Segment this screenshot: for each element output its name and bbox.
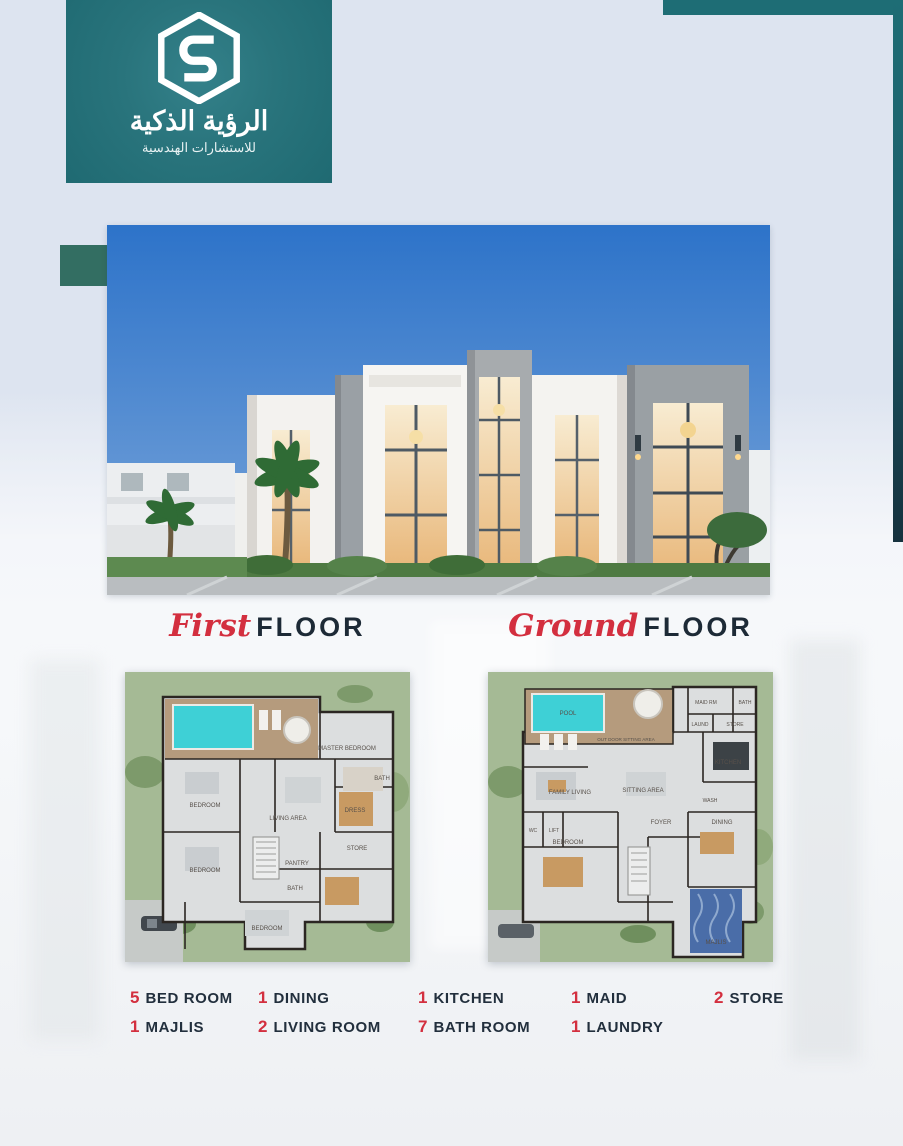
svg-text:STORE: STORE bbox=[726, 722, 744, 728]
hexagon-s-logo-icon bbox=[153, 12, 245, 104]
legend-item-store: 2STORE bbox=[714, 988, 784, 1008]
villa-exterior-photo bbox=[107, 225, 770, 595]
svg-text:LIVING AREA: LIVING AREA bbox=[269, 816, 306, 822]
svg-text:LIFT: LIFT bbox=[549, 828, 559, 834]
svg-text:BEDROOM: BEDROOM bbox=[189, 803, 220, 809]
legend-count: 1 bbox=[571, 1017, 580, 1036]
teal-top-bar bbox=[663, 0, 903, 15]
legend-label: STORE bbox=[729, 990, 783, 1007]
teal-accent-rect bbox=[60, 245, 108, 286]
svg-text:FAMILY LIVING: FAMILY LIVING bbox=[549, 790, 591, 796]
brand-subtitle-arabic: للاستشارات الهندسية bbox=[142, 140, 256, 156]
legend-label: LIVING ROOM bbox=[273, 1019, 380, 1036]
legend-item-majlis: 1MAJLIS bbox=[130, 1017, 204, 1037]
first-floor-word: FLOOR bbox=[256, 612, 366, 642]
svg-text:MAID RM: MAID RM bbox=[695, 700, 717, 706]
legend-count: 1 bbox=[571, 988, 580, 1007]
plan-building bbox=[163, 697, 393, 949]
svg-text:BEDROOM: BEDROOM bbox=[552, 840, 583, 846]
teal-right-strip bbox=[893, 0, 903, 542]
legend-count: 1 bbox=[418, 988, 427, 1007]
svg-text:BATH: BATH bbox=[374, 776, 390, 782]
svg-text:DINING: DINING bbox=[712, 820, 733, 826]
legend-label: KITCHEN bbox=[433, 990, 504, 1007]
legend-item-laundry: 1LAUNDRY bbox=[571, 1017, 663, 1037]
background-band bbox=[30, 660, 100, 1040]
legend-item-bedroom: 5BED ROOM bbox=[130, 988, 233, 1008]
svg-text:WASH: WASH bbox=[703, 798, 718, 804]
svg-text:OUT DOOR SITTING AREA: OUT DOOR SITTING AREA bbox=[597, 737, 656, 742]
svg-text:MASTER BEDROOM: MASTER BEDROOM bbox=[318, 746, 376, 752]
legend-count: 2 bbox=[714, 988, 723, 1007]
legend-label: BATH ROOM bbox=[433, 1019, 530, 1036]
svg-text:SITTING AREA: SITTING AREA bbox=[622, 788, 663, 794]
first-floor-script-word: First bbox=[169, 608, 251, 644]
svg-text:BATH: BATH bbox=[739, 700, 752, 706]
legend-label: DINING bbox=[273, 990, 329, 1007]
svg-text:LAUND: LAUND bbox=[692, 722, 709, 728]
legend-item-bath-room: 7BATH ROOM bbox=[418, 1017, 530, 1037]
legend-label: MAJLIS bbox=[145, 1019, 204, 1036]
legend-count: 7 bbox=[418, 1017, 427, 1036]
legend-count: 1 bbox=[258, 988, 267, 1007]
svg-text:KITCHEN: KITCHEN bbox=[715, 760, 741, 766]
legend-label: MAID bbox=[586, 990, 627, 1007]
svg-text:WC: WC bbox=[529, 828, 538, 834]
svg-text:PANTRY: PANTRY bbox=[285, 861, 309, 867]
legend-label: LAUNDRY bbox=[586, 1019, 663, 1036]
legend-item-maid: 1MAID bbox=[571, 988, 627, 1008]
legend-item-living-room: 2LIVING ROOM bbox=[258, 1017, 381, 1037]
ground-floor-plan: POOL OUT DOOR SITTING AREA MAID RM BATH … bbox=[488, 672, 773, 962]
first-floor-plan: MASTER BEDROOM BEDROOM LIVING AREA DRESS… bbox=[125, 672, 410, 962]
first-floor-title: FirstFLOOR bbox=[125, 608, 410, 644]
svg-text:STORE: STORE bbox=[347, 846, 368, 852]
svg-text:BEDROOM: BEDROOM bbox=[189, 868, 220, 874]
ground-floor-word: FLOOR bbox=[643, 612, 753, 642]
legend-count: 2 bbox=[258, 1017, 267, 1036]
brand-title-arabic: الرؤية الذكية bbox=[130, 106, 269, 136]
driveway bbox=[107, 577, 770, 595]
legend-count: 5 bbox=[130, 988, 139, 1007]
legend-label: BED ROOM bbox=[145, 990, 232, 1007]
svg-text:FOYER: FOYER bbox=[651, 820, 672, 826]
brand-logo-panel: الرؤية الذكية للاستشارات الهندسية bbox=[66, 0, 332, 183]
ground-floor-script-word: Ground bbox=[508, 608, 638, 644]
legend-item-kitchen: 1KITCHEN bbox=[418, 988, 504, 1008]
svg-text:POOL: POOL bbox=[560, 711, 577, 717]
svg-text:MAJLIS: MAJLIS bbox=[705, 940, 726, 946]
svg-text:BEDROOM: BEDROOM bbox=[251, 926, 282, 932]
background-band bbox=[790, 640, 860, 1060]
svg-text:BATH: BATH bbox=[287, 886, 303, 892]
legend-count: 1 bbox=[130, 1017, 139, 1036]
legend-item-dining: 1DINING bbox=[258, 988, 330, 1008]
svg-text:DRESS: DRESS bbox=[345, 808, 366, 814]
ground-floor-title: GroundFLOOR bbox=[488, 608, 773, 644]
poster-page: الرؤية الذكية للاستشارات الهندسية bbox=[0, 0, 903, 1146]
